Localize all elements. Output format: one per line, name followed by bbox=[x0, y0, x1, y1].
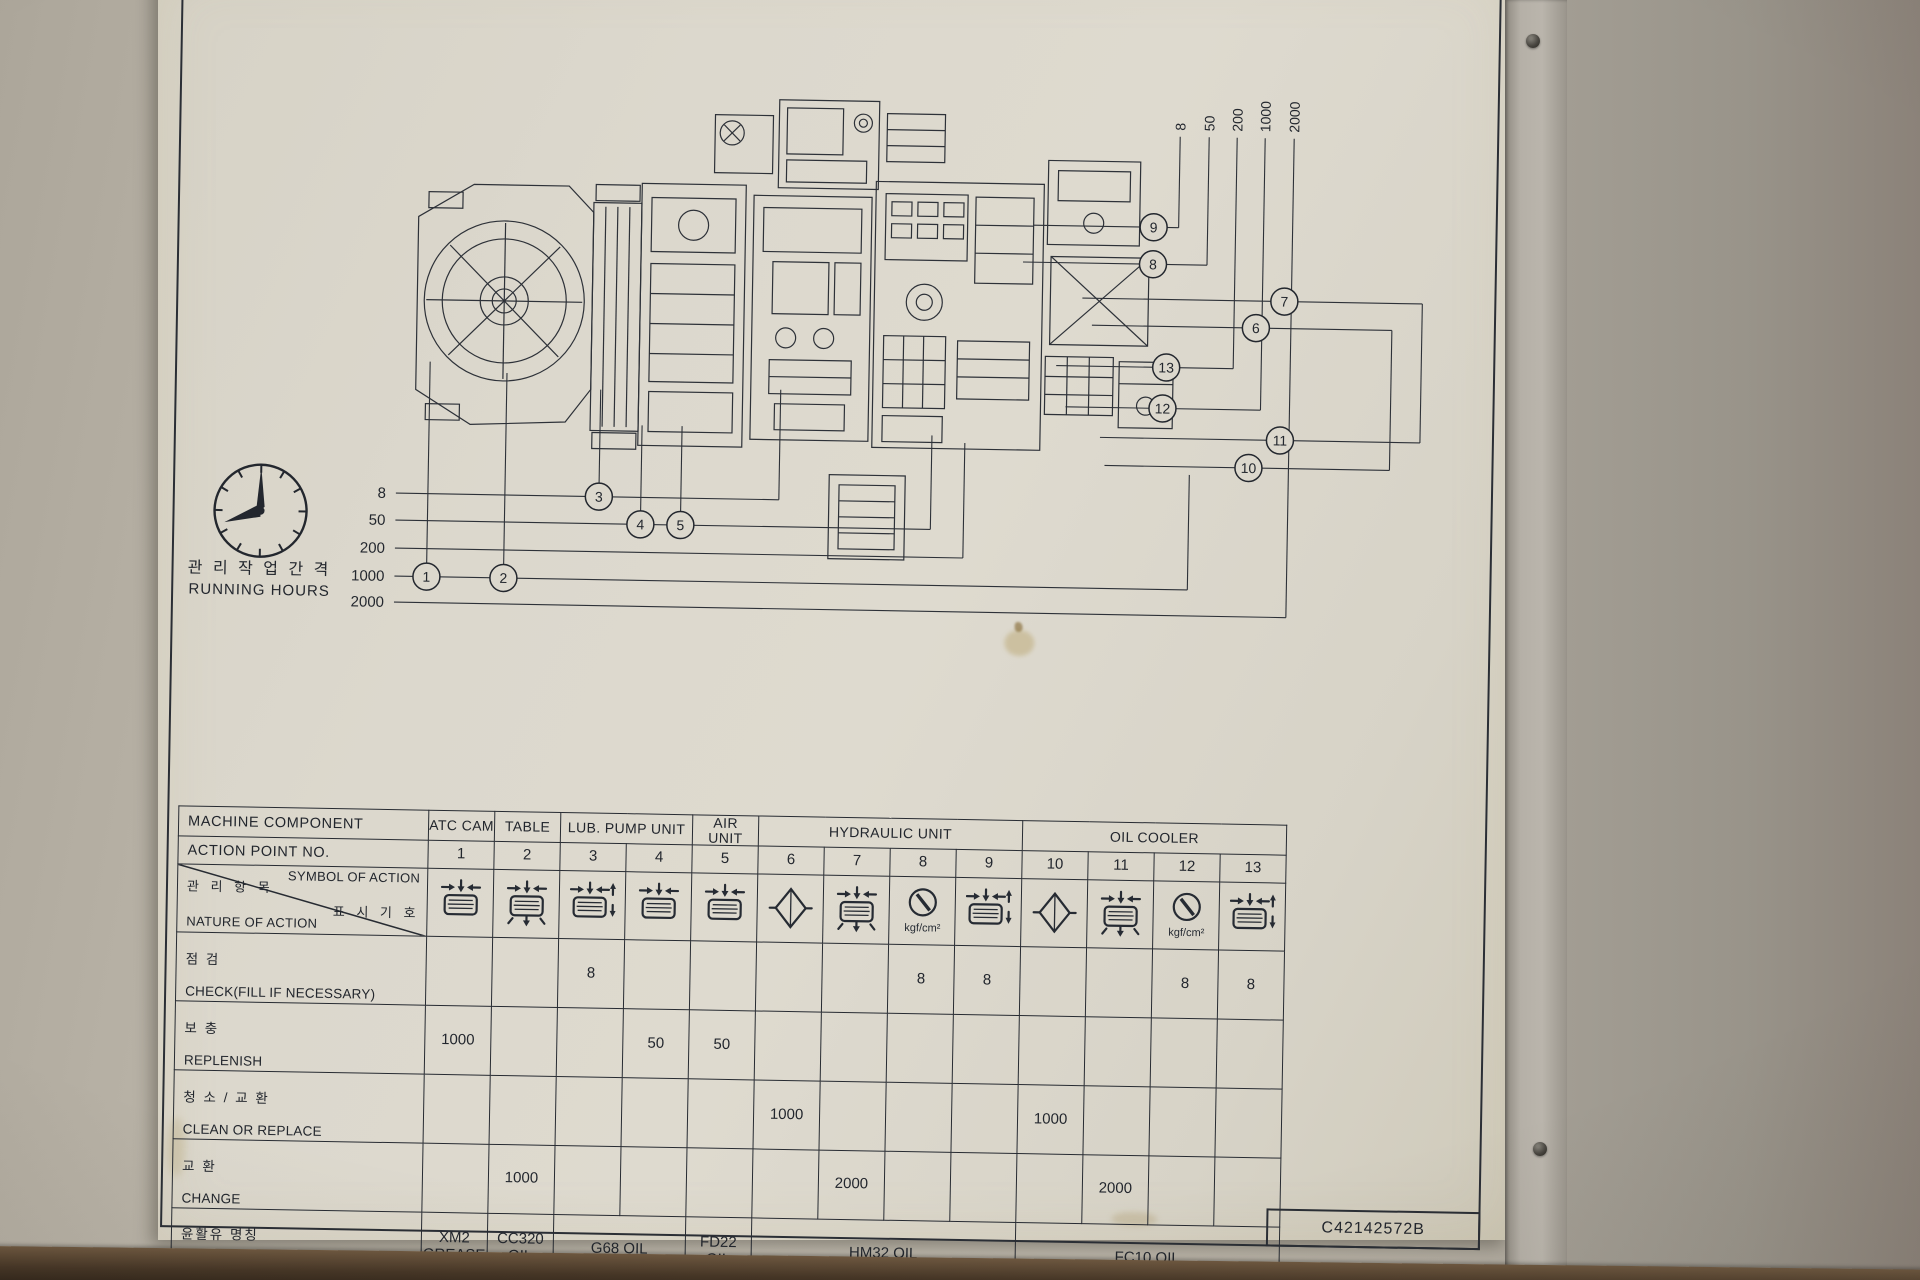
cell-clean-or-replace-col3 bbox=[555, 1076, 622, 1146]
row-label-korean: 윤활유 명칭 bbox=[181, 1227, 415, 1246]
action-point-5: 5 bbox=[692, 845, 758, 874]
fill-drain-symbol-col11 bbox=[1087, 880, 1154, 949]
cell-check-col12: 8 bbox=[1151, 949, 1218, 1019]
cell-change-col8 bbox=[884, 1151, 951, 1221]
top-scale-hours-label: 8 bbox=[1172, 123, 1188, 131]
cell-clean-or-replace-col9 bbox=[951, 1083, 1018, 1153]
svg-text:kgf/cm²: kgf/cm² bbox=[1168, 927, 1205, 940]
cell-change-col10 bbox=[1016, 1153, 1083, 1223]
cell-clean-or-replace-col1 bbox=[423, 1074, 490, 1144]
cell-change-col5 bbox=[686, 1148, 753, 1218]
svg-text:13: 13 bbox=[1158, 359, 1174, 375]
cell-replenish-col12 bbox=[1150, 1018, 1217, 1088]
cell-check-col9: 8 bbox=[953, 946, 1020, 1016]
top-scale-hours-label: 200 bbox=[1229, 108, 1245, 132]
component-group-1: TABLE bbox=[494, 811, 561, 843]
svg-text:10: 10 bbox=[1241, 460, 1257, 476]
row-label-korean: 교 환 bbox=[182, 1158, 416, 1177]
svg-text:3: 3 bbox=[595, 489, 603, 505]
row-label-korean: 보 충 bbox=[184, 1020, 418, 1039]
component-group-2: LUB. PUMP UNIT bbox=[560, 813, 693, 846]
row-label-clean-or-replace: 청 소 / 교 환 CLEAN OR REPLACE bbox=[173, 1070, 424, 1143]
action-point-8: 8 bbox=[890, 849, 956, 878]
cell-check-col3: 8 bbox=[557, 939, 624, 1009]
row-label-english: CHANGE bbox=[181, 1190, 415, 1209]
svg-text:5: 5 bbox=[676, 517, 684, 533]
callout-circle-7: 7 bbox=[1271, 288, 1298, 315]
cell-replenish-col10 bbox=[1018, 1016, 1085, 1086]
row-label-english: CLEAN OR REPLACE bbox=[183, 1121, 417, 1140]
row-label-korean: 청 소 / 교 환 bbox=[183, 1089, 417, 1108]
component-group-0: ATC CAM bbox=[428, 810, 495, 842]
cell-change-col9 bbox=[950, 1152, 1017, 1222]
callout-circle-5: 5 bbox=[667, 511, 694, 538]
cell-replenish-col4: 50 bbox=[622, 1009, 689, 1079]
svg-text:2: 2 bbox=[499, 570, 507, 586]
running-hours-korean-label: 관 리 작 업 간 격 bbox=[188, 558, 332, 579]
cell-change-col12 bbox=[1148, 1156, 1215, 1226]
cell-clean-or-replace-col7 bbox=[819, 1081, 886, 1151]
callout-circle-1: 1 bbox=[413, 563, 440, 590]
svg-text:8: 8 bbox=[1149, 256, 1157, 272]
screw-icon bbox=[1526, 34, 1540, 48]
cell-clean-or-replace-col2 bbox=[489, 1075, 556, 1145]
top-scale-hours-label: 1000 bbox=[1257, 101, 1274, 133]
cell-check-col5 bbox=[689, 941, 756, 1011]
cell-clean-or-replace-col8 bbox=[885, 1082, 952, 1152]
cell-clean-or-replace-col6: 1000 bbox=[753, 1080, 820, 1150]
component-group-3: AIRUNIT bbox=[692, 815, 759, 847]
callout-circle-3: 3 bbox=[585, 483, 612, 510]
left-scale-hours-label: 50 bbox=[369, 512, 386, 529]
cell-replenish-col13 bbox=[1216, 1019, 1283, 1089]
callout-circle-6: 6 bbox=[1242, 314, 1269, 341]
pressure-gauge-symbol-col12: kgf/cm² bbox=[1153, 881, 1220, 950]
action-point-4: 4 bbox=[626, 844, 692, 873]
action-point-1: 1 bbox=[428, 841, 494, 870]
machine-lubrication-diagram: 관 리 작 업 간 격 RUNNING HOURS 85020010002000… bbox=[165, 27, 1496, 710]
cell-replenish-col9 bbox=[952, 1015, 1019, 1085]
cell-clean-or-replace-col11 bbox=[1083, 1086, 1150, 1156]
cell-change-col3 bbox=[554, 1145, 621, 1215]
cell-clean-or-replace-col5 bbox=[687, 1079, 754, 1149]
lubrication-table-wrap: MACHINE COMPONENTATC CAMTABLELUB. PUMP U… bbox=[168, 805, 1287, 1280]
cell-change-col4 bbox=[620, 1146, 687, 1216]
action-point-10: 10 bbox=[1022, 851, 1088, 880]
callout-circle-2: 2 bbox=[490, 564, 517, 591]
cell-check-col11 bbox=[1085, 948, 1152, 1018]
clock-icon bbox=[214, 464, 308, 558]
callout-circle-13: 13 bbox=[1152, 354, 1179, 381]
cell-change-col6 bbox=[752, 1149, 819, 1219]
fill-drain-symbol-col7 bbox=[823, 875, 890, 944]
cell-clean-or-replace-col4 bbox=[621, 1078, 688, 1148]
row-label-english: CHECK(FILL IF NECESSARY) bbox=[185, 984, 419, 1003]
symbol-of-action-corner-cell: SYMBOL OF ACTION 표 시 기 호 관 리 항 목 NATURE … bbox=[177, 864, 428, 936]
photo-of-lubrication-placard: LUBRICATION INSTRUCTIONS bbox=[0, 0, 1920, 1280]
plate-code-box: C42142572B bbox=[1266, 1208, 1481, 1250]
machine-top-view-drawing bbox=[413, 93, 1178, 564]
action-point-12: 12 bbox=[1154, 853, 1220, 882]
callout-circle-12: 12 bbox=[1149, 395, 1176, 422]
component-group-4: HYDRAULIC UNIT bbox=[758, 816, 1022, 851]
check-level-symbol-col13 bbox=[1219, 882, 1286, 951]
nature-korean-label: 관 리 항 목 bbox=[187, 880, 318, 897]
cell-replenish-col8 bbox=[886, 1013, 953, 1083]
grease-fill-symbol-col1 bbox=[427, 869, 494, 938]
row-label-check: 점 검 CHECK(FILL IF NECESSARY) bbox=[175, 932, 426, 1005]
check-level-symbol-col3 bbox=[559, 871, 626, 940]
row-label-english: REPLENISH bbox=[184, 1052, 418, 1071]
left-scale-hours-label: 2000 bbox=[350, 593, 384, 611]
svg-text:7: 7 bbox=[1280, 293, 1288, 309]
cell-replenish-col1: 1000 bbox=[424, 1005, 491, 1075]
cell-replenish-col6 bbox=[754, 1011, 821, 1081]
action-point-header: ACTION POINT NO. bbox=[178, 836, 428, 868]
cell-check-col13: 8 bbox=[1217, 950, 1284, 1020]
cell-check-col2 bbox=[491, 938, 558, 1008]
row-label-korean: 점 검 bbox=[186, 952, 420, 971]
callout-circle-8: 8 bbox=[1139, 251, 1166, 278]
cell-check-col10 bbox=[1019, 947, 1086, 1017]
svg-text:11: 11 bbox=[1273, 432, 1288, 448]
fill-symbol-col5 bbox=[691, 873, 758, 942]
row-label-replenish: 보 충 REPLENISH bbox=[174, 1001, 425, 1074]
callout-circle-4: 4 bbox=[627, 511, 654, 538]
action-point-11: 11 bbox=[1088, 852, 1154, 881]
svg-text:kgf/cm²: kgf/cm² bbox=[904, 922, 941, 935]
cell-clean-or-replace-col10: 1000 bbox=[1017, 1085, 1084, 1155]
screw-icon bbox=[1533, 1142, 1547, 1156]
cell-replenish-col7 bbox=[820, 1012, 887, 1082]
running-hours-english-label: RUNNING HOURS bbox=[188, 580, 330, 599]
svg-text:9: 9 bbox=[1150, 219, 1158, 235]
cell-check-col8: 8 bbox=[887, 945, 954, 1015]
machine-panel-wall bbox=[1567, 0, 1920, 1280]
cell-clean-or-replace-col13 bbox=[1215, 1088, 1282, 1158]
callout-circle-9: 9 bbox=[1140, 214, 1167, 241]
svg-text:12: 12 bbox=[1155, 400, 1171, 416]
cell-check-col4 bbox=[623, 940, 690, 1010]
cell-change-col11: 2000 bbox=[1082, 1154, 1149, 1224]
action-point-3: 3 bbox=[560, 843, 626, 872]
cell-change-col1 bbox=[422, 1143, 489, 1213]
left-scale-hours-label: 8 bbox=[377, 485, 386, 502]
top-scale-hours-label: 2000 bbox=[1286, 101, 1303, 133]
callout-routing-lines bbox=[394, 123, 1425, 620]
machine-panel-trim bbox=[1505, 0, 1567, 1280]
cell-replenish-col5: 50 bbox=[688, 1010, 755, 1080]
callout-circle-10: 10 bbox=[1235, 454, 1262, 481]
svg-text:4: 4 bbox=[636, 516, 644, 532]
nature-of-action-label: NATURE OF ACTION bbox=[186, 914, 317, 931]
callout-circle-11: 11 bbox=[1266, 427, 1293, 454]
pressure-gauge-symbol-col8: kgf/cm² bbox=[889, 877, 956, 946]
cell-change-col7: 2000 bbox=[818, 1150, 885, 1220]
row-label-change: 교 환 CHANGE bbox=[172, 1139, 423, 1212]
left-scale-hours-label: 1000 bbox=[351, 567, 385, 585]
cell-replenish-col11 bbox=[1084, 1017, 1151, 1087]
svg-text:1: 1 bbox=[422, 569, 430, 585]
machine-component-header: MACHINE COMPONENT bbox=[178, 806, 428, 841]
plate-code: C42142572B bbox=[1321, 1219, 1425, 1239]
fill-drain-symbol-col2 bbox=[493, 870, 560, 939]
action-point-2: 2 bbox=[494, 842, 560, 871]
lubrication-placard: LUBRICATION INSTRUCTIONS bbox=[158, 0, 1510, 1240]
component-group-5: OIL COOLER bbox=[1022, 821, 1286, 856]
check-level-symbol-col9 bbox=[955, 878, 1022, 947]
filter-symbol-col10 bbox=[1021, 879, 1088, 948]
cell-replenish-col3 bbox=[556, 1008, 623, 1078]
svg-text:6: 6 bbox=[1252, 320, 1260, 336]
cell-change-col2: 1000 bbox=[488, 1144, 555, 1214]
action-point-7: 7 bbox=[824, 847, 890, 876]
action-point-6: 6 bbox=[758, 846, 824, 875]
action-point-9: 9 bbox=[956, 850, 1022, 879]
left-scale-hours-label: 200 bbox=[360, 539, 385, 556]
fill-symbol-col4 bbox=[625, 872, 692, 941]
cell-clean-or-replace-col12 bbox=[1149, 1087, 1216, 1157]
cell-replenish-col2 bbox=[490, 1007, 557, 1077]
top-scale-hours-label: 50 bbox=[1201, 115, 1217, 131]
lubrication-table: MACHINE COMPONENTATC CAMTABLELUB. PUMP U… bbox=[168, 805, 1287, 1280]
filter-symbol-col6 bbox=[757, 874, 824, 943]
cell-check-col6 bbox=[755, 942, 822, 1012]
cell-check-col1 bbox=[425, 937, 492, 1007]
cell-check-col7 bbox=[821, 943, 888, 1013]
action-point-13: 13 bbox=[1220, 854, 1286, 883]
